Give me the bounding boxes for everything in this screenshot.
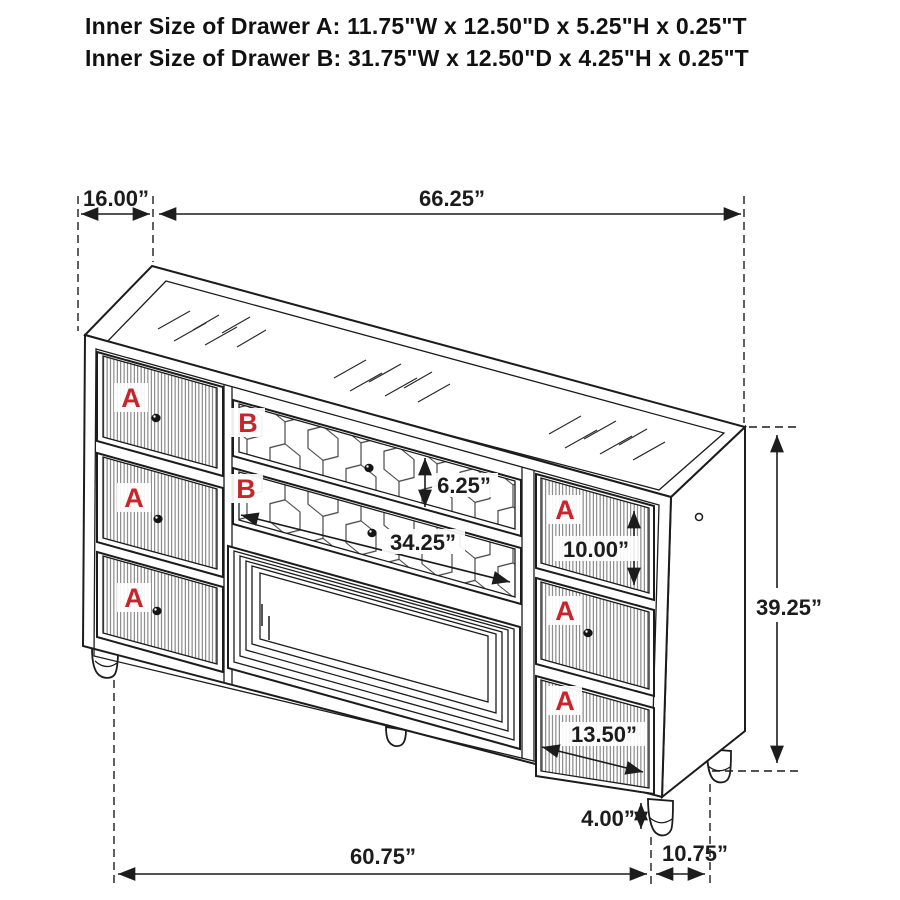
drawer-b-1-tag: B	[238, 408, 258, 438]
front-right-leg	[648, 799, 673, 835]
dim-leg-height-label: 4.00”	[581, 806, 635, 831]
dim-top-depth: 16.00”	[81, 186, 150, 214]
drawer-a-right-3-tag: A	[555, 686, 575, 716]
drawer-a-right-2-tag: A	[555, 596, 575, 626]
dim-base-width: 60.75”	[118, 844, 647, 874]
dim-base-side-depth: 10.75”	[656, 841, 728, 874]
dimension-diagram-page: Inner Size of Drawer A: 11.75"W x 12.50"…	[0, 0, 900, 900]
dresser-dimension-illustration: A A A B B A A A	[0, 0, 900, 900]
knob	[151, 414, 160, 422]
drawer-a-right-1-tag: A	[555, 495, 575, 525]
dim-top-width: 66.25”	[159, 186, 741, 214]
dim-base-side-depth-label: 10.75”	[662, 841, 728, 866]
drawer-a-left-3-tag: A	[124, 583, 144, 613]
drawer-a-left-2-tag: A	[124, 483, 144, 513]
dim-drawer-a-right-height-label: 10.00”	[563, 537, 629, 562]
dim-top-depth-label: 16.00”	[83, 186, 149, 211]
knob	[367, 529, 376, 537]
dim-drawer-a-right-width-label: 13.50”	[571, 722, 637, 747]
dim-overall-height-label: 39.25”	[756, 595, 822, 620]
drawer-a-left-1-tag: A	[121, 383, 141, 413]
dim-overall-height: 39.25”	[756, 435, 822, 763]
knob	[364, 464, 373, 472]
dim-drawer-b-width-label: 34.25”	[390, 530, 456, 555]
dim-drawer-b-height-label: 6.25”	[437, 473, 491, 498]
dim-base-width-label: 60.75”	[350, 844, 416, 869]
drawer-b-2-tag: B	[236, 474, 256, 504]
dim-leg-height: 4.00”	[581, 803, 641, 831]
dim-top-width-label: 66.25”	[419, 186, 485, 211]
knob	[153, 515, 162, 523]
knob	[152, 607, 161, 615]
knob	[583, 629, 592, 637]
